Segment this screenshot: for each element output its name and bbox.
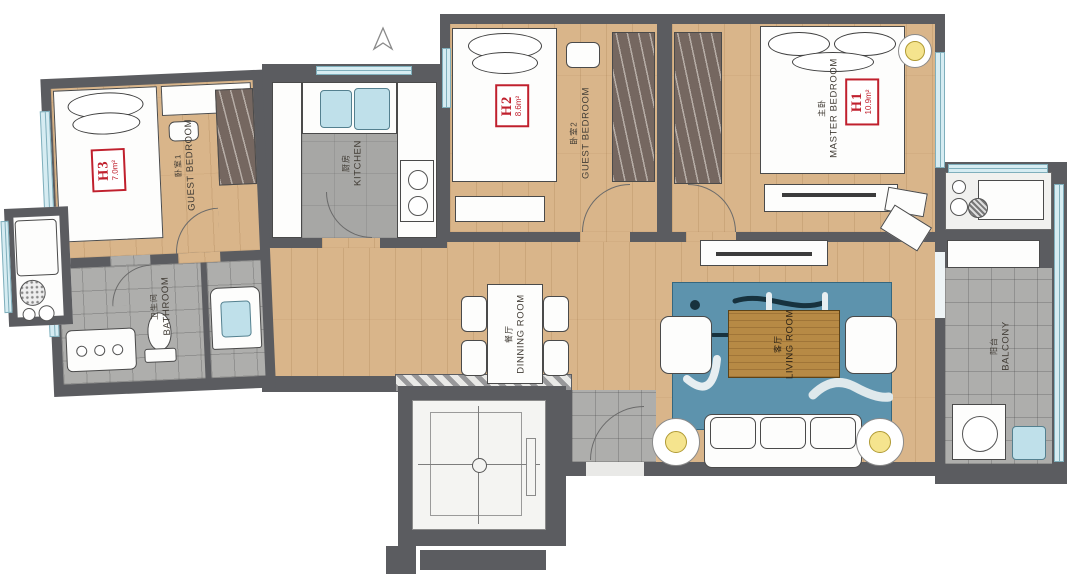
side-table-lamp-core-icon [665,431,687,453]
washing-machine-drum-icon [962,416,998,452]
dining-bottom-wall [262,376,402,392]
kitchen-sink-left-icon [320,90,352,128]
bedroom2-door-gap [580,232,630,242]
kitchen-window [316,66,412,75]
bathroom-label-cn: 卫生间 [148,293,160,320]
north-arrow-icon [372,26,394,52]
h1-area: 10.9m² [865,90,873,115]
armchair [660,316,712,374]
stove-burner-icon [408,196,428,216]
sofa-cushion [810,417,856,449]
bedroom1-door-gap [178,252,220,264]
bedroom2-window [442,48,451,108]
dining-chair [543,340,569,376]
kitchen-label-en: KITCHEN [353,140,364,186]
dining-chair [461,340,487,376]
balcony-label-cn: 阳台 [989,337,1000,355]
room-label-living: 客厅 LIVING ROOM [773,309,796,379]
vanity-basin-icon [220,300,252,337]
master-tv-icon [782,193,876,197]
unit-code-h3: H3 7.0m² [91,148,126,192]
elevator-center-icon [472,458,487,473]
room-label-kitchen: 厨房 KITCHEN [341,140,364,186]
elevator-stub-bottom [420,550,546,570]
dining-chair [543,296,569,332]
master-wardrobe [674,32,722,184]
kitchen-door-gap [322,238,380,248]
armchair [845,316,897,374]
master-window [935,52,945,168]
bedroom2-label-cn: 卧室2 [569,121,580,144]
balcony-faucet-icon [952,180,966,194]
master-tv-dresser [764,184,898,212]
bedroom2-label-en: GUEST BEDROOM [581,87,592,179]
sofa-cushion [710,417,756,449]
ac-condenser-icon [14,219,58,277]
stove-burner-icon [408,170,428,190]
balcony-window-right [1054,184,1064,462]
master-ceiling-lamp-core-icon [905,41,925,61]
dining-chair [461,296,487,332]
kitchen-sink-right-icon [354,88,390,130]
h3-area: 7.0m² [111,160,120,181]
sofa-cushion [760,417,806,449]
elevator-stub-left [386,546,416,574]
balcony-sink-icon [1012,426,1046,460]
bedroom2-wardrobe [612,32,655,182]
balcony-door-gap [935,252,945,318]
balcony-round-hatch-icon [968,198,988,218]
elevator-rail-icon [526,438,536,496]
unit-code-h1: H1 10.9m² [845,79,879,126]
room-label-balcony: 阳台 BALCONY [989,321,1012,371]
living-label-cn: 客厅 [773,335,784,353]
balcony-window-top [948,164,1048,173]
dining-label-cn: 餐厅 [504,325,515,343]
room-label-bedroom2: 卧室2 GUEST BEDROOM [569,87,592,179]
pillow-icon [472,52,538,74]
h1-code: H1 [850,90,865,115]
unit-code-h2: H2 8.6m² [495,85,529,128]
left-wing: 卧室1 GUEST BEDROOM H3 7.0m² 卫生间 BATHROOM [40,70,276,397]
h2-code: H2 [500,96,515,117]
room-label-bathroom: 卫生间 BATHROOM [148,276,174,336]
floor-plan: 卧室1 GUEST BEDROOM H3 7.0m² 卫生间 BATHROOM … [0,0,1080,584]
side-table-lamp-core-icon [869,431,891,453]
room-label-bedroom1: 卧室1 GUEST BEDROOM [171,119,198,212]
bedroom2-dresser [455,196,545,222]
bedroom1-wardrobe [215,88,257,186]
living-tv-icon [716,252,812,256]
toilet-tank-icon [144,348,177,363]
dining-label-en: DINNING ROOM [516,294,527,374]
balcony-drain-icon [950,198,968,216]
kitchen-cabinet-left [272,82,302,238]
room-label-master: 主卧 MASTER BEDROOM [817,58,840,158]
below-dining-white [255,392,398,584]
room-label-dining: 餐厅 DINNING ROOM [504,294,527,374]
bedroom2-stool [566,42,600,68]
bedroom1-label-cn: 卧室1 [172,153,184,177]
master-label-en: MASTER BEDROOM [829,58,840,158]
balcony-label-en: BALCONY [1001,321,1012,371]
master-label-cn: 主卧 [817,99,828,117]
living-label-en: LIVING ROOM [785,309,796,379]
balcony-appliance [978,180,1044,220]
kitchen-label-cn: 厨房 [341,154,352,172]
balcony-cabinet [947,240,1040,268]
entry-door-gap [586,462,644,476]
h2-area: 8.6m² [515,96,523,117]
